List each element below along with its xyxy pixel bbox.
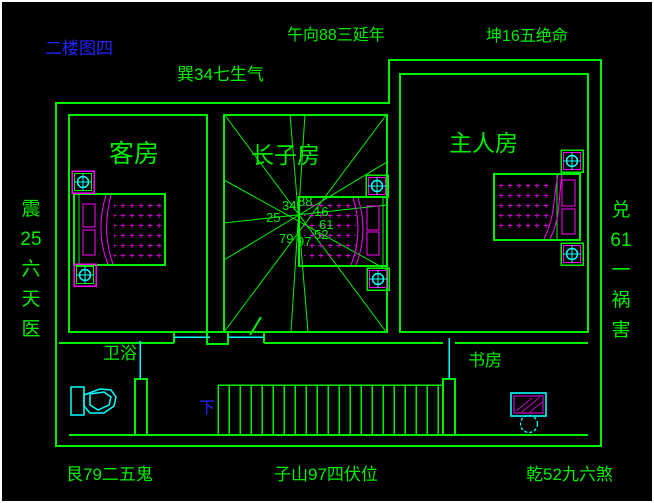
lamp-icon [367,268,389,290]
room-label-master: 主人房 [449,131,518,156]
center-number-nw: 34 [282,198,296,213]
lamp-icon [74,264,96,286]
center-number-n: 88 [298,194,312,209]
lamp-icon [72,171,94,193]
room-label-guest: 客房 [109,141,159,169]
master-bed [494,174,580,240]
mattress-dots [114,200,162,260]
compass-right: 兑 61 一 祸 害 [607,196,635,346]
compass-top-center: 午向88三延年 [287,27,385,45]
compass-left: 震 25 六 天 医 [17,195,45,345]
center-number-s: 97 [297,234,311,249]
pillow [83,230,95,255]
center-number-w: 25 [266,210,280,225]
drawing-title: 二楼图四 [45,40,113,59]
bathroom-partition [135,379,147,435]
pillow [367,232,379,255]
staircase [218,385,443,435]
floor-plan: 二楼图四 巽34七生气 午向88三延年 坤16五绝命 震 25 六 天 医 兑 … [0,0,654,503]
floor-plan-drawing [2,2,654,503]
center-number-se: 52 [314,227,328,242]
mattress-dots [498,180,552,234]
compass-top-left: 巽34七生气 [177,66,264,85]
blanket-line [101,195,113,264]
pillow [367,206,379,230]
lamp-icon [366,175,388,197]
compass-bottom-right: 乾52九六煞 [526,466,613,485]
desk [511,393,546,416]
pillow [562,180,575,206]
compass-top-right: 坤16五绝命 [486,28,568,46]
stool [521,416,538,433]
study-partition [443,379,455,435]
compass-bottom-left: 艮79二五鬼 [66,466,153,485]
room-label-eldest: 长子房 [251,143,320,168]
center-number-sw: 79 [279,231,293,246]
lamp-icon [561,150,583,172]
pillow [83,204,95,227]
room-label-bathroom: 卫浴 [103,345,137,364]
lamp-icon [561,243,583,265]
stairs-down-label: 下 [199,400,215,418]
guest-bed [74,194,165,265]
toilet [71,387,116,415]
room-label-study: 书房 [468,352,502,371]
pillow [562,209,575,234]
compass-bottom-center: 子山97四伏位 [274,466,378,485]
